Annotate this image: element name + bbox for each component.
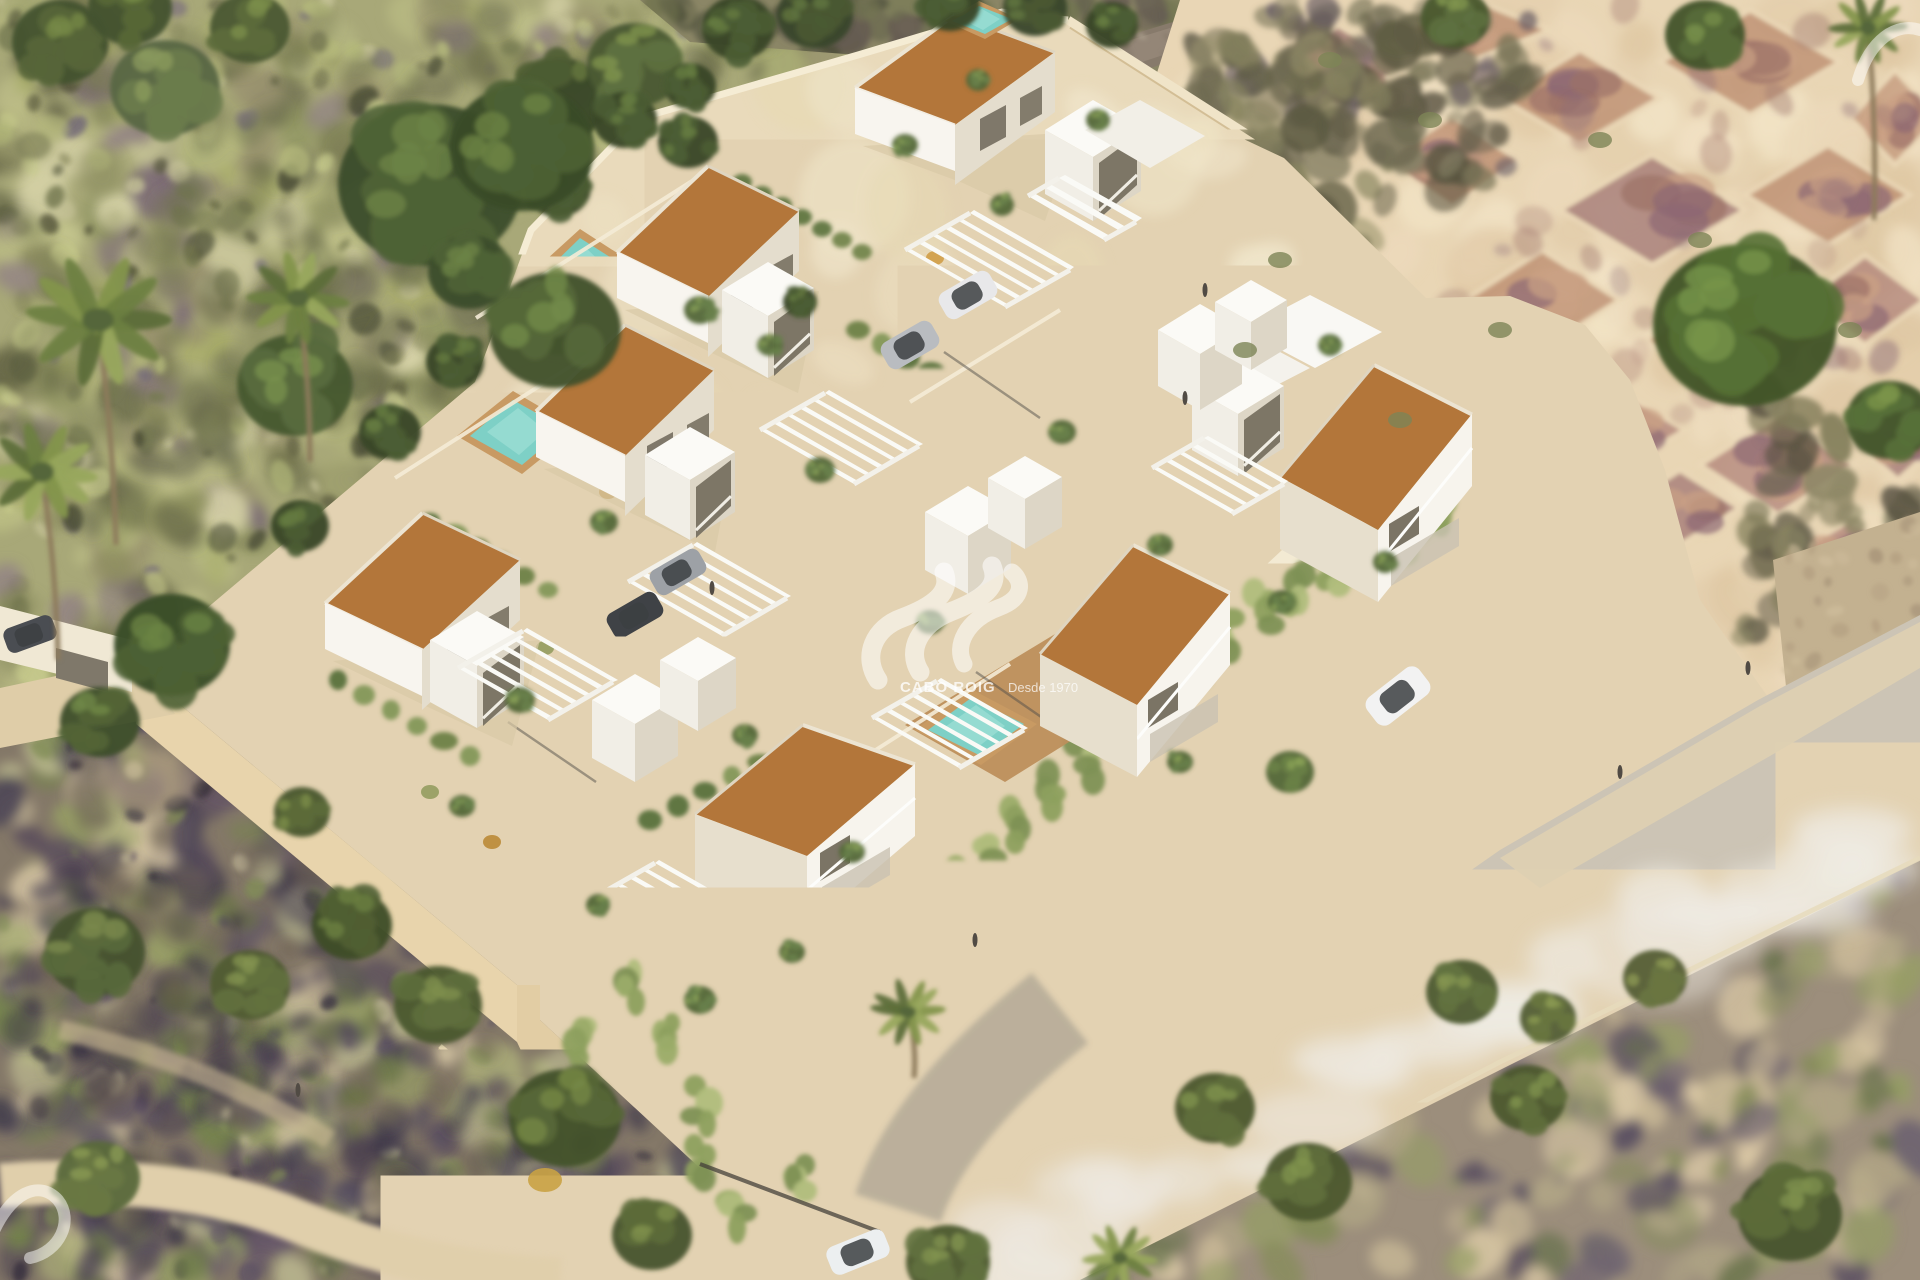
svg-text:Desde 1970: Desde 1970: [1008, 680, 1078, 695]
svg-text:CABO ROIG: CABO ROIG: [900, 679, 996, 696]
